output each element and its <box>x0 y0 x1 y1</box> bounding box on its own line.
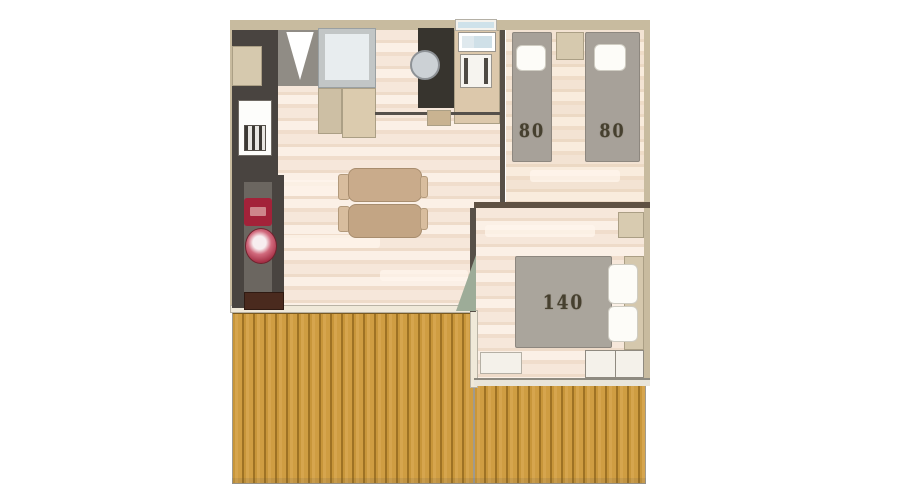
floor-plan-canvas: 80 80 140 <box>0 0 900 500</box>
twin-bed-right-pillow <box>594 44 626 71</box>
bench-seat-right-top <box>420 176 428 198</box>
toilet-unit <box>238 100 272 156</box>
kitchen-stool <box>427 110 451 126</box>
floor-highlight <box>380 270 468 281</box>
dining-table-top-half <box>348 168 422 202</box>
washbasin-bowl <box>282 32 318 82</box>
entrance-threshold-step <box>244 292 284 310</box>
bathroom-cabinet-small <box>318 88 342 134</box>
round-basin <box>410 50 440 80</box>
dining-table-bottom-half <box>348 204 422 238</box>
double-bed: 140 <box>515 256 612 348</box>
double-bed-pillow-bottom <box>608 306 638 342</box>
stove-unit <box>460 54 492 88</box>
twin-bed-left-size-label: 80 <box>513 120 551 142</box>
terrace-deck-left <box>232 312 474 484</box>
bathroom-cabinet-large <box>342 88 376 138</box>
shower-tray-inner <box>325 34 369 80</box>
double-bed-pillow-top <box>608 264 638 304</box>
double-bedroom-shelf <box>618 212 644 238</box>
shower-tray <box>318 28 376 88</box>
emblem-mark <box>250 207 266 216</box>
twin-nightstand <box>556 32 584 60</box>
floor-highlight <box>485 225 595 237</box>
wall-double-bedroom-bottom <box>474 378 650 386</box>
double-bedroom-step-mat <box>480 352 522 374</box>
kitchen-sink <box>458 32 496 52</box>
wardrobe-divider <box>615 351 616 377</box>
double-bed-size-label: 140 <box>516 292 611 315</box>
toilet-grill <box>244 125 266 151</box>
kitchen-sink-bowl <box>462 36 492 48</box>
bathroom-shelf <box>232 46 262 86</box>
bench-seat-right-bottom <box>420 208 428 230</box>
wall-living-twin-divider <box>500 30 505 205</box>
terrace-deck-right <box>474 385 646 484</box>
kitchen-window <box>456 20 496 30</box>
mobile-home-floor-plan: 80 80 140 <box>230 20 650 484</box>
wall-double-bedroom-left-lower <box>470 310 478 388</box>
wall-twin-double-divider <box>474 202 650 208</box>
corner-washbasin <box>278 30 322 86</box>
floor-highlight <box>530 170 620 182</box>
twin-bed-right-size-label: 80 <box>586 120 639 142</box>
entrance-round-rug <box>245 228 277 264</box>
double-bedroom-wardrobe <box>585 350 644 378</box>
twin-bed-left-pillow <box>516 45 546 71</box>
entrance-red-emblem <box>244 198 272 226</box>
deck-bottom-shadow <box>232 478 646 484</box>
